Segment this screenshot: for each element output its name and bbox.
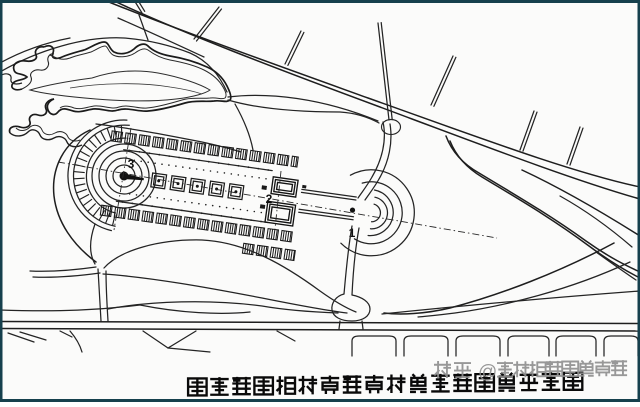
svg-text:@: @ [478, 362, 497, 383]
svg-text:3: 3 [128, 157, 135, 171]
svg-text:2: 2 [266, 192, 273, 206]
